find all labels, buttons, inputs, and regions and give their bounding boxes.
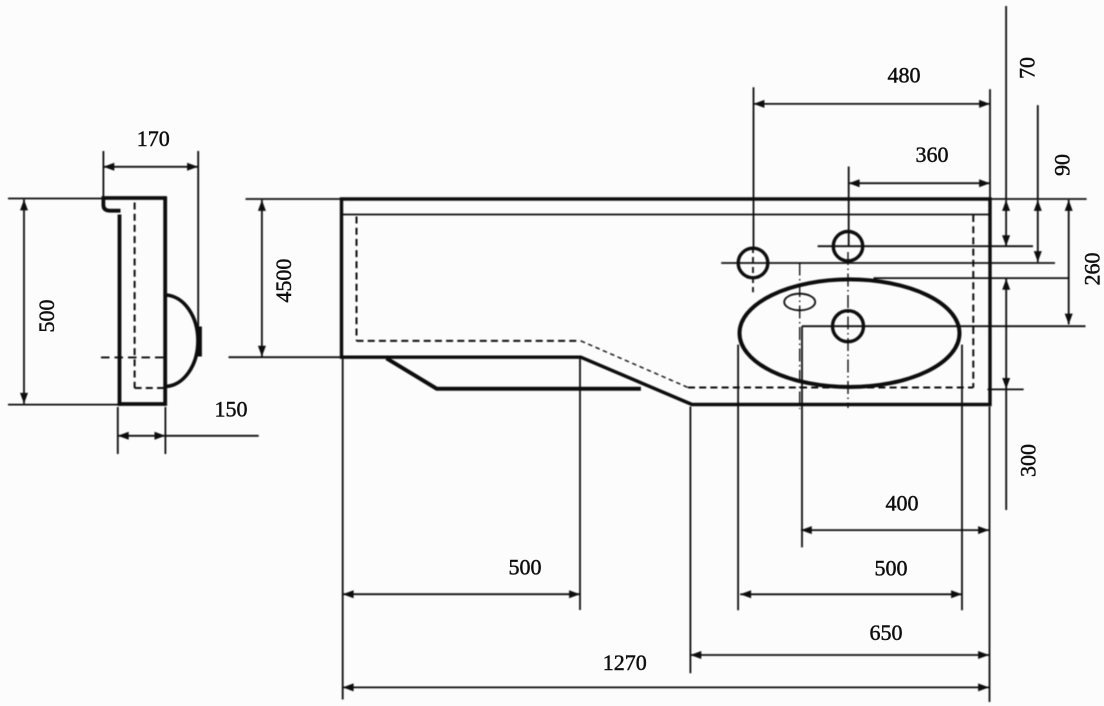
svg-text:150: 150 bbox=[215, 397, 248, 422]
svg-text:90: 90 bbox=[1050, 154, 1075, 176]
svg-text:1270: 1270 bbox=[603, 650, 647, 675]
svg-text:480: 480 bbox=[888, 63, 921, 88]
svg-text:170: 170 bbox=[137, 126, 170, 151]
svg-text:500: 500 bbox=[34, 300, 59, 333]
svg-text:4500: 4500 bbox=[271, 259, 296, 303]
svg-text:500: 500 bbox=[509, 555, 542, 580]
svg-text:400: 400 bbox=[886, 491, 919, 516]
svg-text:70: 70 bbox=[1015, 57, 1040, 79]
svg-text:360: 360 bbox=[916, 142, 949, 167]
svg-text:300: 300 bbox=[1016, 444, 1041, 477]
svg-text:260: 260 bbox=[1080, 253, 1104, 286]
svg-text:500: 500 bbox=[875, 556, 908, 581]
svg-text:650: 650 bbox=[870, 620, 903, 645]
